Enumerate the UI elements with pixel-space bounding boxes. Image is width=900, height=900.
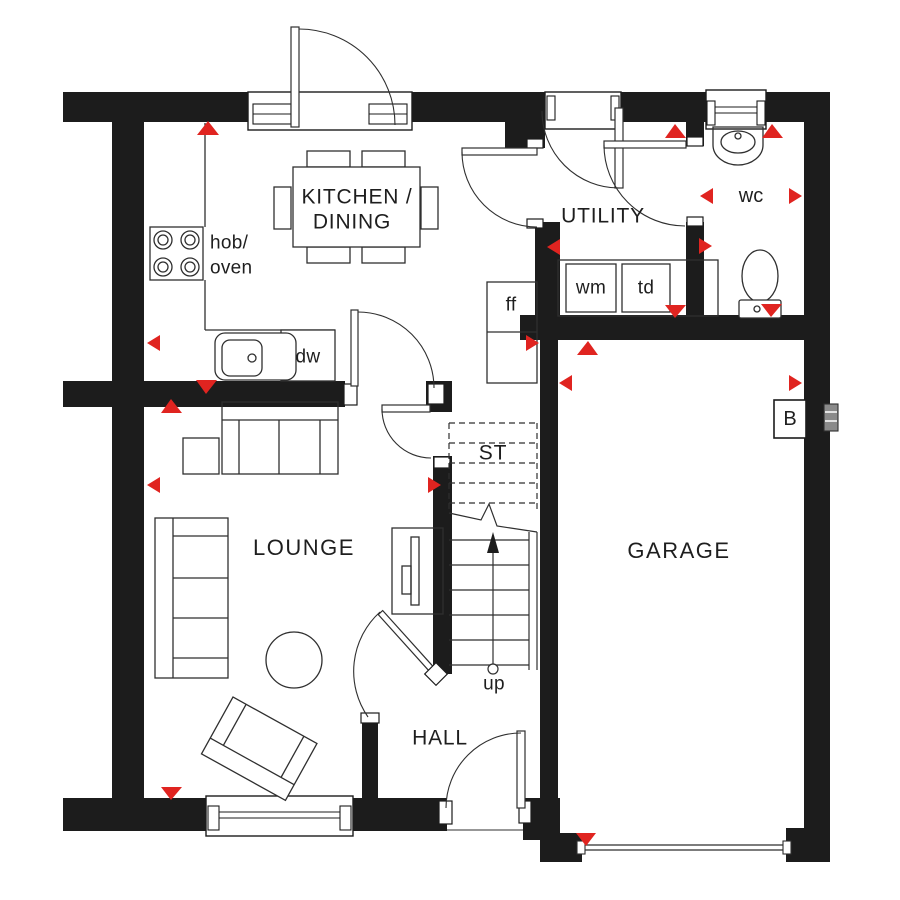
room-label-hall: HALL bbox=[412, 728, 468, 749]
room-label-wc: wc bbox=[739, 186, 763, 206]
room-label-utility: UTILITY bbox=[561, 206, 645, 227]
appliance-label-dishwasher: dw bbox=[296, 348, 321, 367]
kitchen-lounge-door bbox=[344, 310, 444, 405]
appliance-label-hob-line2: oven bbox=[210, 259, 252, 278]
kitchen-utility-door bbox=[462, 139, 543, 228]
meter-box bbox=[824, 404, 838, 431]
sofa-large bbox=[183, 402, 338, 474]
appliance-label-boiler: B bbox=[783, 409, 796, 429]
hob-oven bbox=[150, 227, 203, 280]
utility-external-door bbox=[542, 92, 623, 188]
wc-window bbox=[706, 90, 766, 129]
floor-plan-drawing bbox=[0, 0, 900, 900]
wc-basin bbox=[713, 127, 763, 165]
lounge-store-door bbox=[382, 405, 450, 468]
stairs-up-label: up bbox=[483, 675, 505, 694]
appliance-label-fridge-freezer: ff bbox=[506, 296, 517, 315]
room-label-store: ST bbox=[479, 443, 507, 464]
garage-door bbox=[577, 841, 791, 854]
patio-door-assembly bbox=[248, 27, 412, 130]
armchair bbox=[201, 697, 316, 800]
floor-plan: KITCHEN / DINING UTILITY wc GARAGE ST LO… bbox=[0, 0, 900, 900]
room-label-garage: GARAGE bbox=[627, 540, 730, 562]
appliance-label-washing-machine: wm bbox=[576, 279, 606, 298]
room-label-kitchen-dining-line1: KITCHEN / bbox=[301, 187, 412, 208]
appliance-label-hob-line1: hob/ bbox=[210, 234, 248, 253]
coffee-table bbox=[266, 632, 322, 688]
lounge-window bbox=[206, 796, 353, 836]
appliance-label-tumble-dryer: td bbox=[638, 279, 654, 298]
room-label-lounge: LOUNGE bbox=[253, 537, 355, 559]
sofa-small bbox=[155, 518, 228, 678]
room-label-kitchen-dining-line2: DINING bbox=[313, 212, 391, 233]
